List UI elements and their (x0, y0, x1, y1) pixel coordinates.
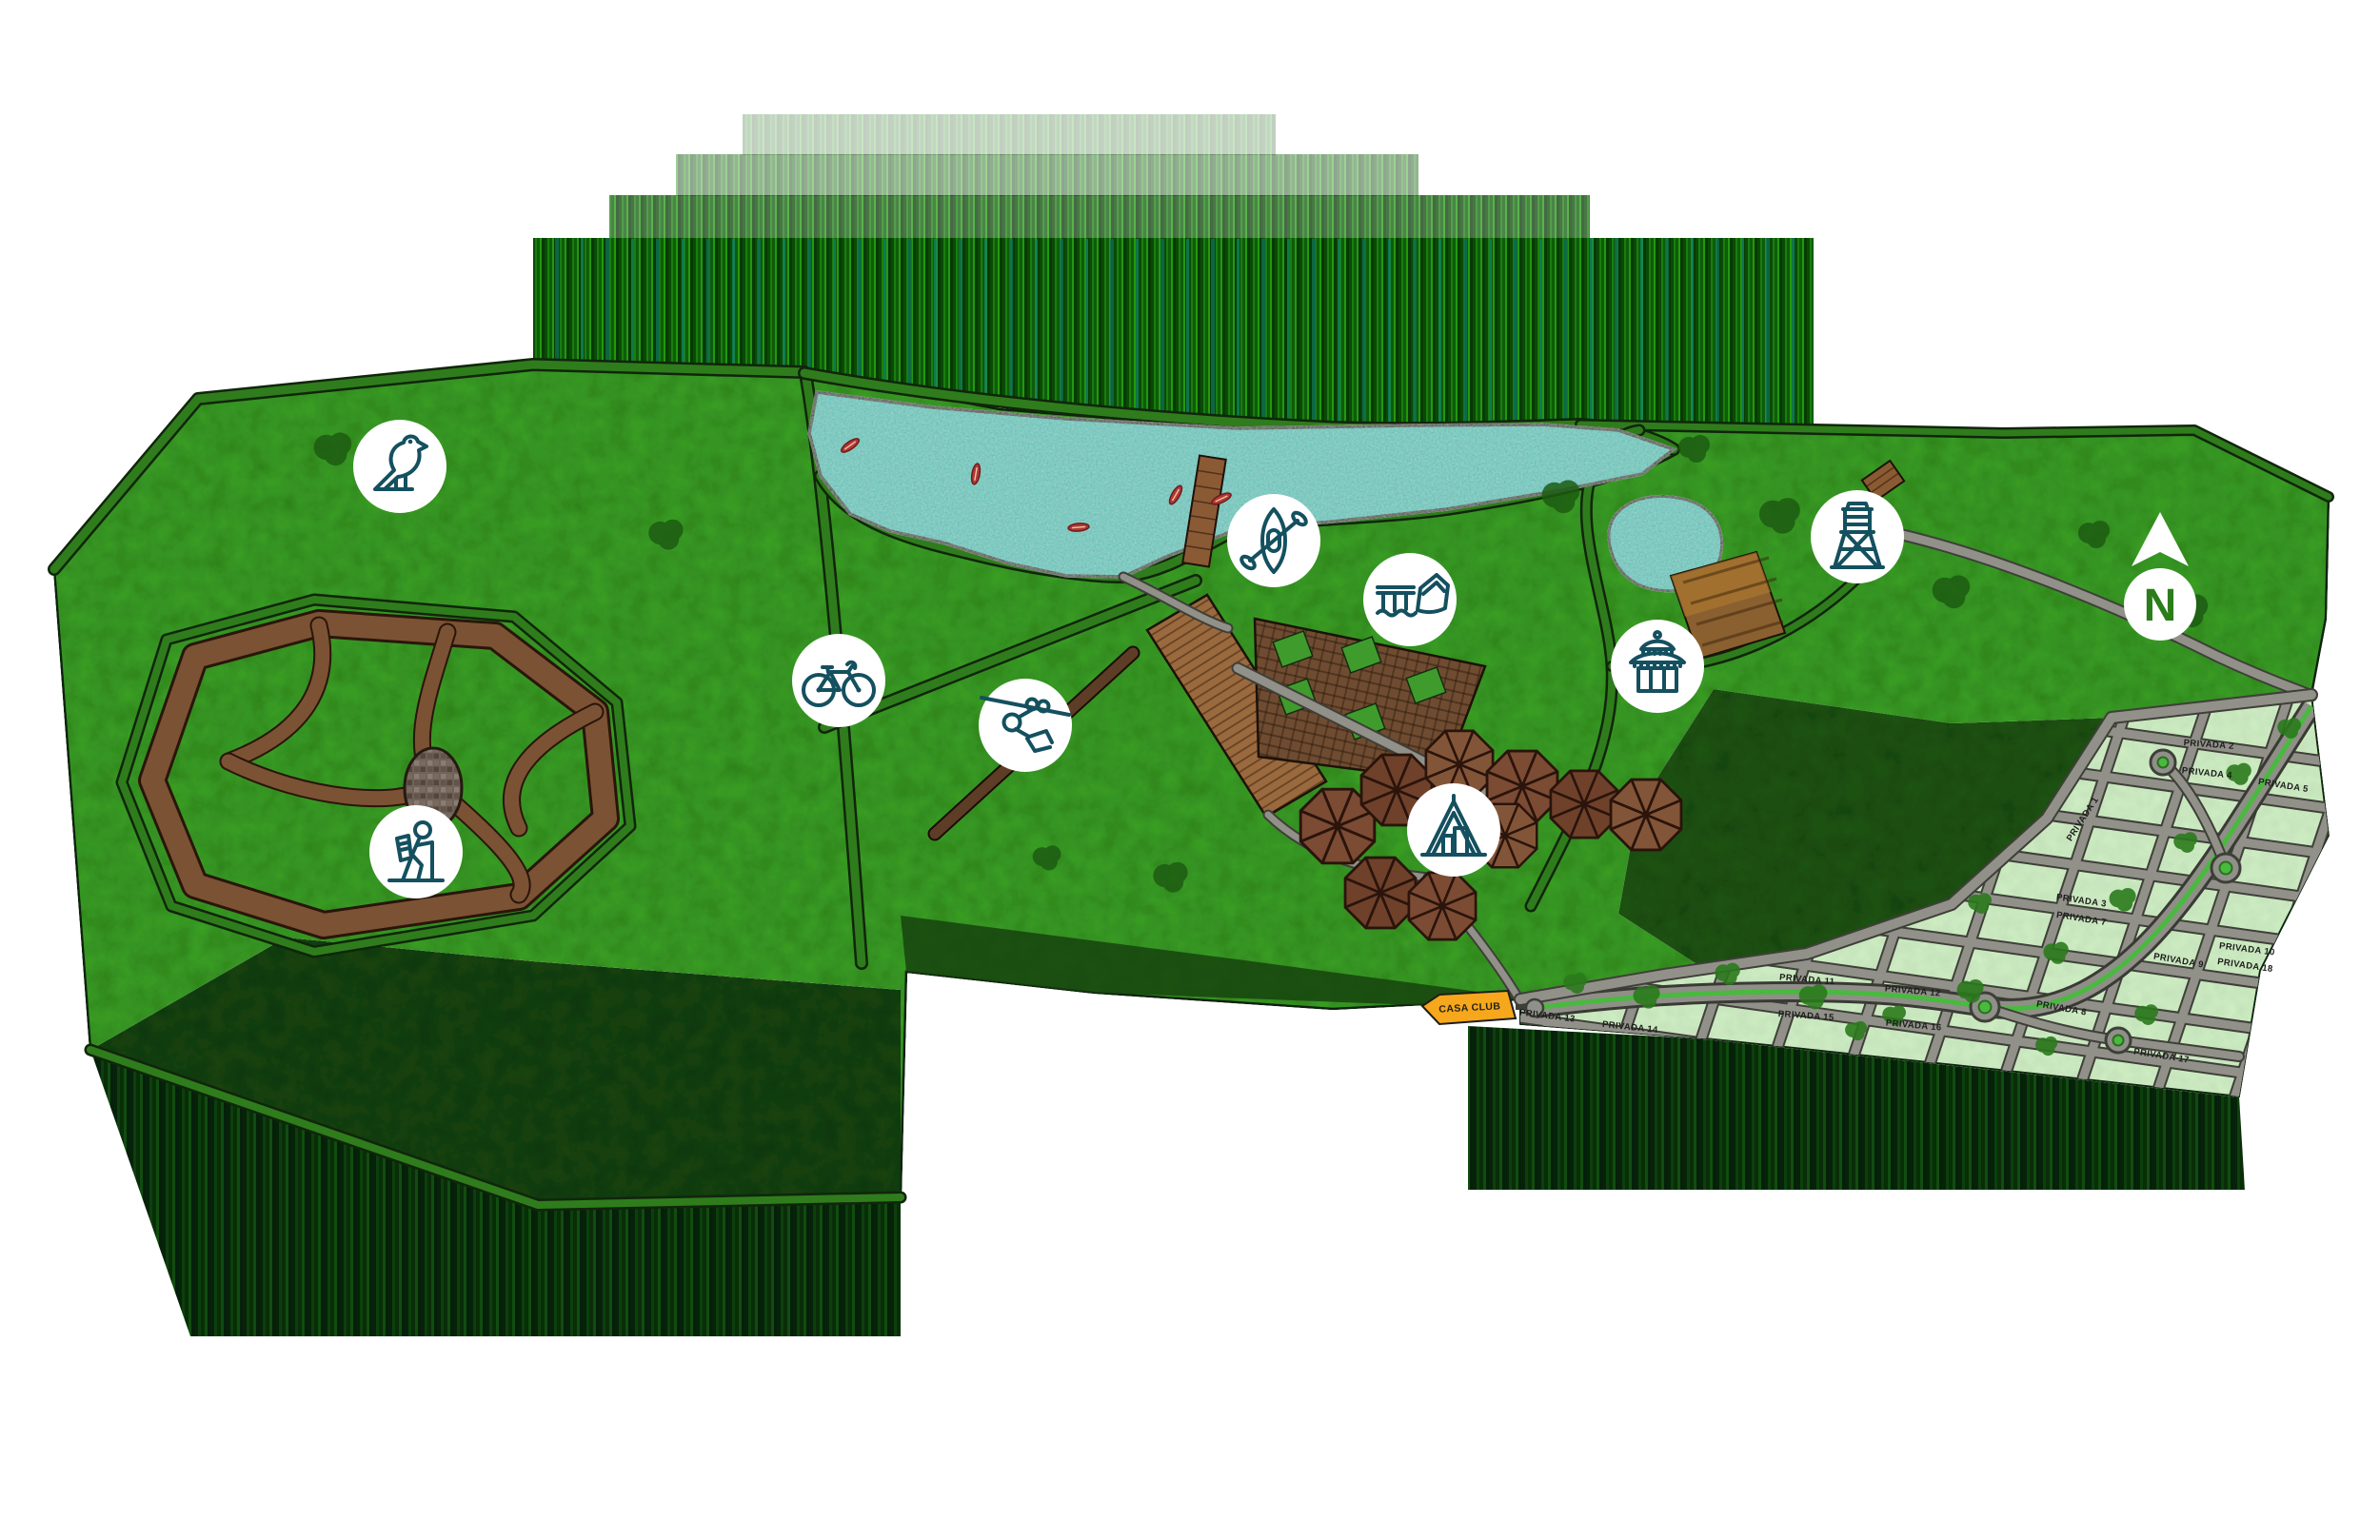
north-label: N (2144, 581, 2177, 631)
palapa-badge[interactable] (1611, 620, 1704, 713)
roundabout (2151, 750, 2175, 775)
hiker-badge[interactable] (369, 805, 463, 898)
roundabout (2106, 1028, 2131, 1053)
hut (1409, 873, 1476, 939)
dock-boat-badge[interactable] (1363, 553, 1457, 646)
masterplan-stage: CASA CLUB PRIVADA 1 PRIVADA 2 PRIVADA 3 … (0, 0, 2380, 1540)
streak-band-top3 (676, 154, 1418, 196)
zipline-badge[interactable] (979, 679, 1072, 772)
streak-band-top2 (609, 195, 1590, 239)
kayak-badge[interactable] (1227, 494, 1320, 587)
tent-badge[interactable] (1407, 783, 1500, 877)
bird-badge[interactable] (353, 420, 446, 513)
bicycle-badge[interactable] (792, 634, 885, 727)
streak-band-top4 (743, 114, 1276, 155)
hut (1345, 858, 1416, 928)
hut (1551, 771, 1617, 838)
masterplan-map: CASA CLUB PRIVADA 1 PRIVADA 2 PRIVADA 3 … (0, 0, 2380, 1540)
water-tower-badge[interactable] (1811, 490, 1904, 583)
roundabout (2211, 854, 2240, 882)
hut (1611, 780, 1681, 850)
